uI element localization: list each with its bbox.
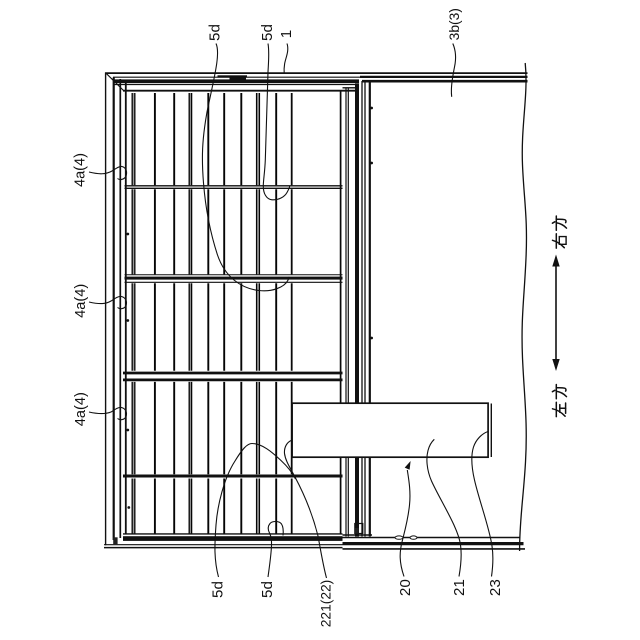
svg-text:4a(4): 4a(4) — [73, 392, 89, 426]
svg-text:5d: 5d — [210, 581, 227, 598]
svg-text:5d: 5d — [259, 24, 276, 41]
svg-text:4a(4): 4a(4) — [73, 284, 89, 318]
svg-text:20: 20 — [397, 579, 414, 596]
svg-text:23: 23 — [487, 579, 504, 596]
svg-text:5d: 5d — [259, 581, 276, 598]
svg-text:221(22): 221(22) — [319, 580, 334, 628]
svg-text:4a(4): 4a(4) — [72, 153, 88, 187]
svg-text:21: 21 — [451, 579, 468, 596]
svg-text:3b(3): 3b(3) — [447, 8, 462, 40]
svg-text:1: 1 — [278, 30, 295, 38]
svg-text:5d: 5d — [207, 24, 224, 41]
